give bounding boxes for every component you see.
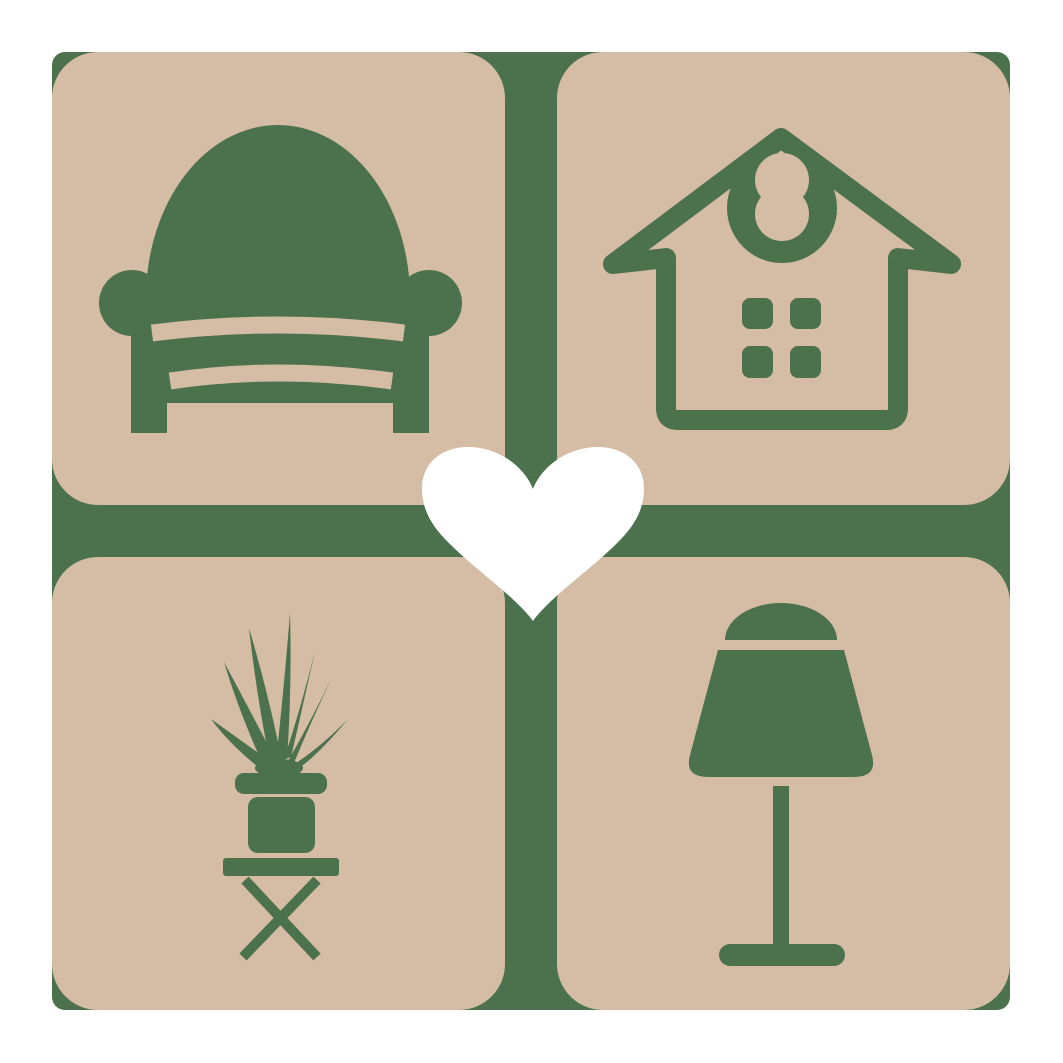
armchair-seam-bottom: [170, 373, 392, 381]
window-pane: [790, 298, 821, 329]
lamp-stem: [773, 786, 789, 948]
pot-rim: [235, 773, 327, 794]
lamp-shade: [689, 650, 873, 777]
home-decor-logo: [0, 0, 1063, 1063]
window-pane: [742, 346, 773, 378]
house-moon-bite: [755, 153, 809, 207]
armchair-left-leg: [131, 303, 167, 433]
armchair-right-leg: [393, 303, 429, 433]
pot-body: [248, 797, 315, 853]
armchair-seat-block: [166, 298, 394, 403]
logo-canvas: [0, 0, 1063, 1063]
armchair-seam-top: [152, 325, 404, 333]
window-pane: [742, 298, 773, 329]
tile-top-right: [557, 52, 1010, 505]
table-top: [223, 858, 339, 876]
window-pane: [790, 346, 821, 378]
lamp-base: [719, 944, 845, 966]
